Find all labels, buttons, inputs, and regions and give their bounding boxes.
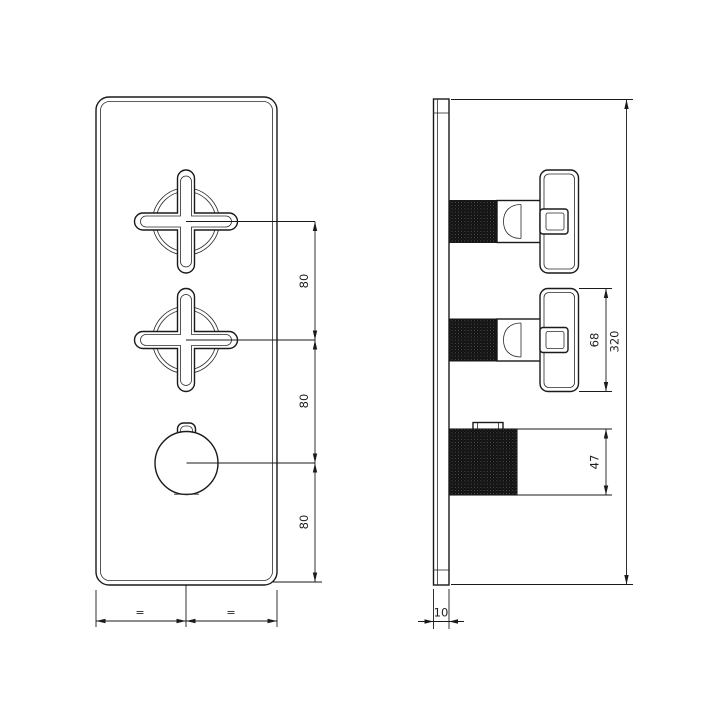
dimension-10: 10 <box>434 606 449 620</box>
front-bottom-dimension: = = <box>96 585 277 627</box>
dimension-47: 47 <box>588 455 602 470</box>
dimension-68: 68 <box>588 333 602 348</box>
equal-mark-right: = <box>226 606 235 619</box>
dimension-80-bottom: 80 <box>297 515 311 530</box>
dimension-80-top: 80 <box>297 274 311 289</box>
dimension-320: 320 <box>608 331 622 353</box>
handle-knurled-base <box>450 319 497 361</box>
side-plate <box>434 99 450 585</box>
dimension-80-middle: 80 <box>297 394 311 409</box>
side-cross-handle-1 <box>450 170 579 273</box>
front-view: 80 80 80 = = <box>96 97 322 627</box>
side-dimension-10: 10 <box>418 589 464 629</box>
valve-technical-drawing: 80 80 80 = = <box>0 0 720 720</box>
handle-knurled-base <box>450 201 497 243</box>
side-plate-outline <box>434 99 450 585</box>
side-cross-handle-2 <box>450 289 579 392</box>
side-dimension-47: 47 <box>505 429 612 495</box>
front-vertical-dimension-chain: 80 80 80 <box>297 222 317 583</box>
side-knurled-knob <box>450 423 517 496</box>
equal-mark-left: = <box>135 606 144 619</box>
technical-drawing-page: 80 80 80 = = <box>0 0 720 720</box>
knob-knurled-body <box>450 429 517 495</box>
side-view: 68 47 320 10 <box>418 99 633 629</box>
